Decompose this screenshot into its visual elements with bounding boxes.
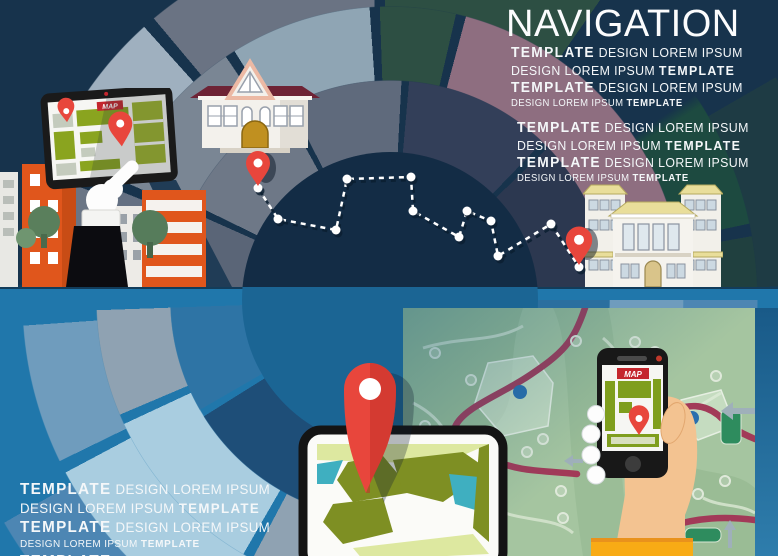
- right-edge-strip: [755, 308, 778, 556]
- template-text-line: DESIGN LOREM IPSUM TEMPLATE: [517, 137, 749, 154]
- smartphone: MAP: [597, 348, 668, 478]
- city-tablet-illustration: MAP: [0, 88, 240, 287]
- phone-home-button: [625, 456, 641, 472]
- route-dashed-line: [258, 177, 579, 267]
- map-icon-with-pin: [293, 352, 508, 556]
- route-end-pin-icon: [566, 227, 598, 266]
- mansion-center-block: [609, 202, 697, 287]
- template-text-line: TEMPLATE DESIGN LOREM IPSUM: [517, 154, 749, 172]
- navigation-infographic: MAP: [0, 0, 778, 556]
- tablet-device: MAP: [40, 88, 178, 190]
- page-title: NAVIGATION: [506, 3, 740, 46]
- template-text-line: DESIGN LOREM IPSUM TEMPLATE: [517, 172, 749, 186]
- route-start-pin-icon: [246, 151, 276, 186]
- phone-speaker: [617, 356, 647, 361]
- phone-screen-label: MAP: [624, 370, 642, 379]
- mansion-door: [645, 261, 661, 287]
- template-text-line: DESIGN LOREM IPSUM TEMPLATE: [511, 97, 743, 111]
- template-text-line: DESIGN LOREM IPSUM TEMPLATE: [20, 537, 270, 552]
- template-text-line: DESIGN LOREM IPSUM TEMPLATE: [511, 62, 743, 79]
- template-text-line-cutoff: TEMPLATE DESIGN LOREM IPSUM: [20, 552, 270, 556]
- template-text-line: TEMPLATE DESIGN LOREM IPSUM: [511, 44, 743, 62]
- template-text-line: TEMPLATE DESIGN LOREM IPSUM: [511, 79, 743, 97]
- template-text-line: TEMPLATE DESIGN LOREM IPSUM: [20, 518, 270, 537]
- template-text-line: DESIGN LOREM IPSUM TEMPLATE: [20, 499, 270, 518]
- template-text-line: TEMPLATE DESIGN LOREM IPSUM: [20, 480, 270, 499]
- text-block-right-1: TEMPLATE DESIGN LOREM IPSUM DESIGN LOREM…: [511, 44, 743, 111]
- text-block-bottom-left: TEMPLATE DESIGN LOREM IPSUM DESIGN LOREM…: [20, 480, 270, 556]
- phone-hand-illustration: MAP: [555, 335, 720, 556]
- house-door: [242, 121, 268, 148]
- template-text-line: TEMPLATE DESIGN LOREM IPSUM: [517, 119, 749, 137]
- suit-sleeve: [66, 226, 128, 287]
- phone-camera-icon: [656, 356, 662, 362]
- text-block-right-2: TEMPLATE DESIGN LOREM IPSUM DESIGN LOREM…: [517, 119, 749, 186]
